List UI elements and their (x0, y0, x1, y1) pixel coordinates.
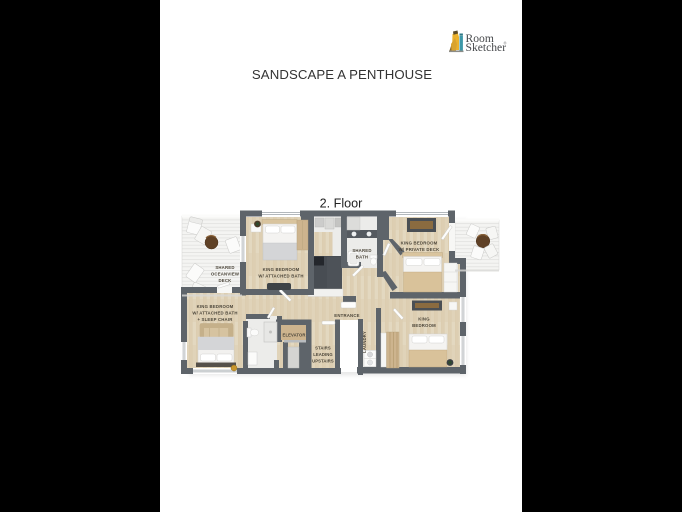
svg-text:KING BEDROOM: KING BEDROOM (401, 241, 438, 246)
svg-text:STAIRS: STAIRS (315, 346, 331, 351)
svg-text:2. Floor: 2. Floor (320, 197, 363, 211)
svg-text:W/ ATTACHED BATH: W/ ATTACHED BATH (258, 274, 303, 279)
svg-text:W/ ATTACHED BATH: W/ ATTACHED BATH (192, 311, 237, 316)
svg-text:KING: KING (418, 317, 430, 322)
svg-text:ELEVATOR: ELEVATOR (283, 333, 306, 338)
svg-text:UPSTAIRS: UPSTAIRS (312, 359, 334, 364)
svg-text:SHARED: SHARED (352, 248, 371, 253)
svg-text:LAUNDRY: LAUNDRY (362, 331, 367, 353)
svg-text:DECK: DECK (219, 278, 233, 283)
svg-text:BATH: BATH (356, 255, 368, 260)
svg-text:SANDSCAPE A PENTHOUSE: SANDSCAPE A PENTHOUSE (252, 67, 432, 82)
svg-text:OCEANVIEW: OCEANVIEW (211, 272, 240, 277)
svg-text:®: ® (504, 40, 507, 45)
svg-text:LEADING: LEADING (313, 352, 333, 357)
svg-text:KING BEDROOM: KING BEDROOM (197, 304, 234, 309)
svg-text:+ SLEEP CHAIR: + SLEEP CHAIR (197, 317, 233, 322)
svg-text:Sketcher: Sketcher (466, 41, 507, 54)
svg-text:KING BEDROOM: KING BEDROOM (263, 267, 300, 272)
svg-text:W/ PRIVATE DECK: W/ PRIVATE DECK (399, 247, 440, 252)
svg-text:BEDROOM: BEDROOM (412, 323, 436, 328)
svg-text:SHARED: SHARED (215, 265, 234, 270)
svg-text:ENTRANCE: ENTRANCE (334, 313, 359, 318)
